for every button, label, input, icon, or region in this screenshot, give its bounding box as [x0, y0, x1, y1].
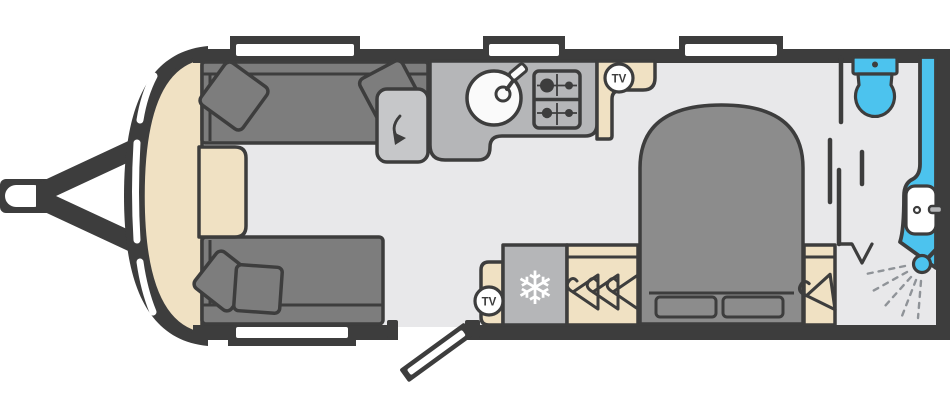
- door-jamb-left: [387, 320, 398, 338]
- snowflake-icon: ❄: [516, 261, 555, 315]
- toilet: [853, 57, 897, 116]
- window-top-1-glass: [236, 44, 354, 56]
- caravan-floorplan: TV ❄ TV: [0, 0, 950, 420]
- burner-large: [540, 79, 554, 93]
- burner-medium: [542, 108, 552, 118]
- tv-label: TV: [612, 74, 627, 86]
- window-top-2-glass: [489, 44, 559, 56]
- tv-badge-lounge: TV: [475, 287, 503, 315]
- toilet-flush-button: [872, 62, 878, 68]
- tv-label: TV: [482, 297, 497, 309]
- shower-head-icon: [914, 256, 931, 273]
- toilet-bowl: [856, 74, 895, 116]
- swivel-unit: [377, 89, 428, 162]
- wall-bottom-right: [465, 325, 950, 340]
- floorplan-svg: TV ❄ TV: [0, 0, 950, 420]
- window-top-3-glass: [685, 44, 777, 56]
- bed-pillow-right: [723, 297, 783, 317]
- island-bed: [640, 105, 803, 324]
- basin-tap: [929, 206, 942, 213]
- burner-small-2: [565, 109, 573, 117]
- occasional-chest: [199, 147, 246, 237]
- sofa-bottom-pillow-2: [233, 264, 282, 313]
- burner-small-1: [565, 82, 573, 90]
- front-window-2: [136, 143, 138, 240]
- window-bottom-glass: [236, 327, 348, 338]
- hob: [534, 71, 580, 128]
- bed-pillow-left: [656, 297, 716, 317]
- tv-badge-kitchen: TV: [605, 64, 633, 92]
- wall-right: [936, 49, 950, 340]
